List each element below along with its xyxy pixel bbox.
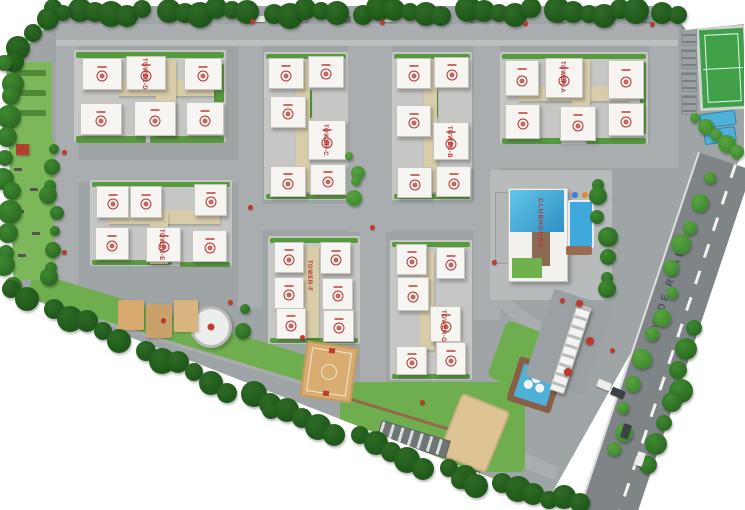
unit-badge-icon <box>283 109 294 120</box>
unit-text-mark <box>287 315 296 317</box>
unit-badge-icon <box>204 243 215 254</box>
internal-road <box>240 204 492 230</box>
building <box>396 58 431 89</box>
unit-text-mark <box>574 114 583 116</box>
car <box>642 16 652 22</box>
building <box>323 310 354 342</box>
car <box>513 16 523 22</box>
building <box>608 103 644 136</box>
car <box>470 16 480 22</box>
internal-road <box>56 24 678 40</box>
building <box>320 242 351 274</box>
car <box>599 16 609 22</box>
tower-d-label: TOWER-D <box>141 58 147 90</box>
unit-badge-icon <box>107 199 118 210</box>
unit-badge-icon <box>286 320 297 331</box>
internal-road <box>238 40 262 308</box>
building <box>270 166 306 197</box>
unit-text-mark <box>284 173 293 175</box>
unit-badge-icon <box>408 70 419 81</box>
play-equipment-icon <box>161 318 166 323</box>
unit-text-mark <box>282 65 291 67</box>
unit-badge-icon <box>446 355 457 366</box>
bench <box>16 210 24 213</box>
building <box>608 60 644 99</box>
unit-badge-icon <box>284 254 295 265</box>
unit-text-mark <box>108 235 117 237</box>
unit-text-mark <box>409 285 418 287</box>
building <box>396 346 427 375</box>
internal-road <box>650 40 678 160</box>
building <box>268 58 304 89</box>
umbrella-icon <box>582 192 588 198</box>
tower-f-label: TOWER-F <box>306 260 312 291</box>
unit-text-mark <box>108 194 117 196</box>
unit-text-mark <box>409 65 418 67</box>
tower-g-label: TOWER-G <box>440 310 446 342</box>
building <box>276 308 306 339</box>
hedge <box>12 110 46 116</box>
unit-text-mark <box>407 251 416 253</box>
building <box>270 96 306 128</box>
umbrella-icon <box>572 192 578 198</box>
parking-pad <box>681 72 697 92</box>
gate-marker-icon <box>586 337 594 345</box>
hedge <box>76 136 146 143</box>
unit-text-mark <box>201 110 210 112</box>
building <box>396 105 431 137</box>
tree <box>217 383 237 403</box>
unit-badge-icon <box>408 118 419 129</box>
building <box>95 227 129 260</box>
car <box>341 16 351 22</box>
unit-text-mark <box>333 286 342 288</box>
unit-badge-icon <box>409 179 420 190</box>
building <box>184 58 222 90</box>
unit-text-mark <box>407 353 416 355</box>
unit-badge-icon <box>332 291 343 302</box>
building <box>308 56 344 88</box>
unit-badge-icon <box>107 240 118 251</box>
tree <box>259 393 281 415</box>
tree <box>262 401 280 419</box>
play-court <box>118 300 144 330</box>
tennis-court[interactable] <box>696 25 745 112</box>
unit-text-mark <box>622 69 631 71</box>
internal-road <box>56 160 240 182</box>
building <box>96 186 129 218</box>
internal-road <box>500 144 678 168</box>
bench <box>18 254 26 257</box>
car <box>384 16 394 22</box>
unit-badge-icon <box>445 260 456 271</box>
unit-badge-icon <box>200 115 211 126</box>
unit-badge-icon <box>284 290 295 301</box>
clubhouse-label: CLUBHOUSE <box>536 198 543 248</box>
unit-badge-icon <box>517 75 528 86</box>
basketball-hoop-icon <box>323 390 330 396</box>
internal-road <box>360 200 386 400</box>
hedge <box>180 262 230 267</box>
tree <box>412 458 434 480</box>
tree <box>451 471 469 489</box>
unit-text-mark <box>447 350 456 352</box>
bench <box>32 232 40 235</box>
unit-badge-icon <box>97 71 108 82</box>
unit-badge-icon <box>205 197 216 208</box>
unit-badge-icon <box>573 121 584 132</box>
unit-badge-icon <box>96 116 107 127</box>
unit-badge-icon <box>141 199 152 210</box>
tower-e-label: TOWER-E <box>158 229 164 261</box>
building <box>436 342 466 375</box>
lawn <box>8 140 54 280</box>
car <box>255 16 265 22</box>
unit-text-mark <box>334 318 343 320</box>
gate-marker-icon <box>564 368 572 376</box>
basketball-court[interactable] <box>299 341 358 404</box>
building <box>505 60 539 96</box>
building <box>436 247 465 279</box>
gazebo <box>16 144 29 155</box>
tower-b-label: TOWER-B <box>446 126 452 158</box>
car <box>298 16 308 22</box>
tree <box>394 447 420 473</box>
play-court <box>174 300 198 332</box>
unit-badge-icon <box>408 291 419 302</box>
unit-text-mark <box>285 285 294 287</box>
parking-pad <box>681 26 697 46</box>
unit-text-mark <box>206 192 215 194</box>
pool-deck <box>566 246 592 255</box>
gate-marker-icon <box>576 300 583 307</box>
tower-a-label: TOWER-A <box>559 61 565 93</box>
tree <box>0 245 14 261</box>
building <box>82 58 122 90</box>
building <box>505 104 540 139</box>
building <box>397 277 429 311</box>
basketball-hoop-icon <box>329 348 336 354</box>
hedge <box>150 136 224 143</box>
unit-text-mark <box>142 194 151 196</box>
sidewalk <box>56 40 678 46</box>
tower-c-label: TOWER-C <box>322 124 328 156</box>
unit-badge-icon <box>406 256 417 267</box>
unit-text-mark <box>518 112 527 114</box>
building <box>396 244 427 275</box>
unit-text-mark <box>447 64 456 66</box>
building <box>194 184 227 216</box>
unit-badge-icon <box>517 119 528 130</box>
unit-text-mark <box>449 173 458 175</box>
unit-text-mark <box>518 68 527 70</box>
clubhouse-lawn <box>512 258 542 278</box>
unit-text-mark <box>285 249 294 251</box>
swimming-pool[interactable] <box>568 200 594 248</box>
building <box>274 242 304 273</box>
unit-badge-icon <box>283 178 294 189</box>
unit-badge-icon <box>323 176 334 187</box>
unit-badge-icon <box>198 71 209 82</box>
unit-text-mark <box>446 255 455 257</box>
tree <box>552 485 576 509</box>
tree <box>305 414 331 440</box>
bench <box>14 168 22 171</box>
building <box>186 102 224 135</box>
building <box>192 230 227 262</box>
building <box>274 277 304 309</box>
unit-text-mark <box>97 111 106 113</box>
building <box>322 278 353 310</box>
tree <box>381 442 401 462</box>
unit-text-mark <box>322 64 331 66</box>
master-plan: TOWER-D TOWER-C TOWER-B TOWER-A TOWER-E … <box>0 0 745 510</box>
unit-text-mark <box>98 66 107 68</box>
unit-badge-icon <box>621 116 632 127</box>
hedge <box>12 70 46 76</box>
play-court <box>146 304 172 338</box>
unit-text-mark <box>151 109 160 111</box>
building <box>436 166 471 197</box>
car <box>556 16 566 22</box>
unit-text-mark <box>324 171 333 173</box>
unit-badge-icon <box>448 178 459 189</box>
unit-text-mark <box>622 111 631 113</box>
tree <box>464 474 488 498</box>
tree <box>185 363 203 381</box>
hedge <box>12 90 46 96</box>
building <box>134 101 176 136</box>
unit-badge-icon <box>330 255 341 266</box>
bench <box>30 188 38 191</box>
unit-badge-icon <box>333 323 344 334</box>
building <box>80 103 122 135</box>
unit-text-mark <box>284 104 293 106</box>
building <box>130 186 162 218</box>
tree <box>199 371 223 395</box>
unit-text-mark <box>331 250 340 252</box>
building <box>434 57 469 88</box>
parking-pad <box>681 95 697 115</box>
unit-text-mark <box>205 238 214 240</box>
clubhouse-wing <box>495 192 509 264</box>
building <box>310 164 346 195</box>
unit-badge-icon <box>150 116 161 127</box>
unit-badge-icon <box>446 69 457 80</box>
plaza-center-icon <box>208 324 215 331</box>
unit-text-mark <box>409 113 418 115</box>
tree <box>323 424 345 446</box>
parking-pad <box>681 49 697 69</box>
unit-badge-icon <box>321 69 332 80</box>
car <box>427 16 437 22</box>
tree <box>0 254 15 276</box>
building <box>560 106 596 141</box>
unit-text-mark <box>199 66 208 68</box>
building <box>397 167 432 198</box>
unit-badge-icon <box>406 357 417 368</box>
unit-badge-icon <box>621 77 632 88</box>
tree <box>292 408 312 428</box>
unit-badge-icon <box>281 70 292 81</box>
unit-text-mark <box>410 174 419 176</box>
